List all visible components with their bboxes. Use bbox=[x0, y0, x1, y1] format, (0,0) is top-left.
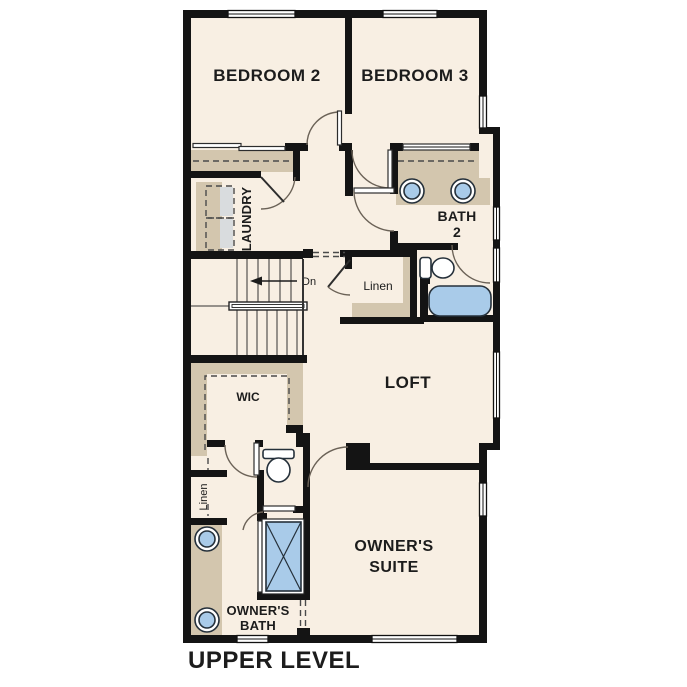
bath2-label-line1: BATH bbox=[437, 208, 476, 224]
bath2-label-line2: 2 bbox=[453, 224, 461, 240]
owners-bath-label-line1: OWNER'S bbox=[227, 603, 290, 618]
building-floor bbox=[183, 10, 500, 643]
linen-shelf-bottom bbox=[352, 303, 417, 317]
loft-label: LOFT bbox=[385, 373, 431, 392]
wic-shelf-top bbox=[191, 363, 303, 374]
bedroom3-side-window bbox=[480, 96, 487, 128]
bedroom2-closet-bypass-door bbox=[193, 144, 241, 148]
bath2-sink-right bbox=[451, 179, 475, 203]
tub-window bbox=[494, 248, 500, 282]
bath2-toilet bbox=[420, 258, 454, 279]
owners-suite-side-window bbox=[480, 483, 487, 516]
bedroom2-label: BEDROOM 2 bbox=[213, 66, 320, 85]
hall-linen-label: Linen bbox=[363, 279, 392, 293]
bath2-window bbox=[494, 207, 500, 240]
bedroom3-closet bbox=[396, 150, 479, 178]
owners-bath-label-line2: BATH bbox=[240, 618, 276, 633]
plan-title: UPPER LEVEL bbox=[188, 647, 360, 674]
floor-plan-page: Dn bbox=[0, 0, 687, 687]
laundry-counter bbox=[196, 182, 222, 251]
owners-suite-label-line1: OWNER'S bbox=[354, 538, 433, 555]
owners-sink-top bbox=[195, 527, 219, 551]
wic-label: WIC bbox=[236, 390, 260, 404]
owners-linen-label: Linen bbox=[198, 484, 210, 511]
owners-sink-bottom bbox=[195, 608, 219, 632]
bathtub bbox=[429, 286, 491, 316]
floor-plan-upper-level: Dn bbox=[0, 0, 687, 687]
owners-bath-window bbox=[237, 636, 268, 643]
bath2-sink-left bbox=[400, 179, 424, 203]
bedroom2-closet-bypass-door bbox=[239, 147, 285, 151]
stairs-dn-label: Dn bbox=[302, 276, 316, 288]
owners-suite-window bbox=[372, 636, 457, 643]
bedroom3-label: BEDROOM 3 bbox=[361, 66, 468, 85]
bedroom3-window bbox=[383, 11, 437, 18]
laundry-label: LAUNDRY bbox=[239, 187, 254, 252]
bedroom2-window bbox=[228, 11, 295, 18]
shower bbox=[262, 519, 304, 594]
owners-suite-label-line2: SUITE bbox=[369, 559, 419, 576]
stair-handrail bbox=[229, 302, 307, 310]
loft-window bbox=[494, 352, 500, 418]
